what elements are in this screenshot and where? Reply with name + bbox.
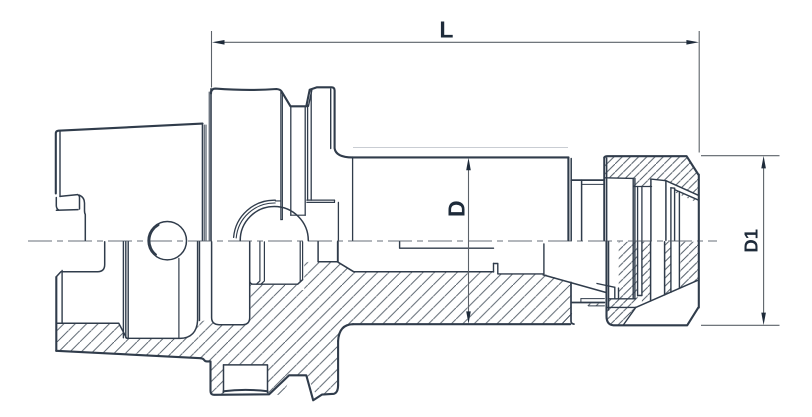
svg-text:D1: D1 [741,229,762,253]
svg-text:D: D [443,200,469,217]
svg-text:L: L [439,16,453,42]
